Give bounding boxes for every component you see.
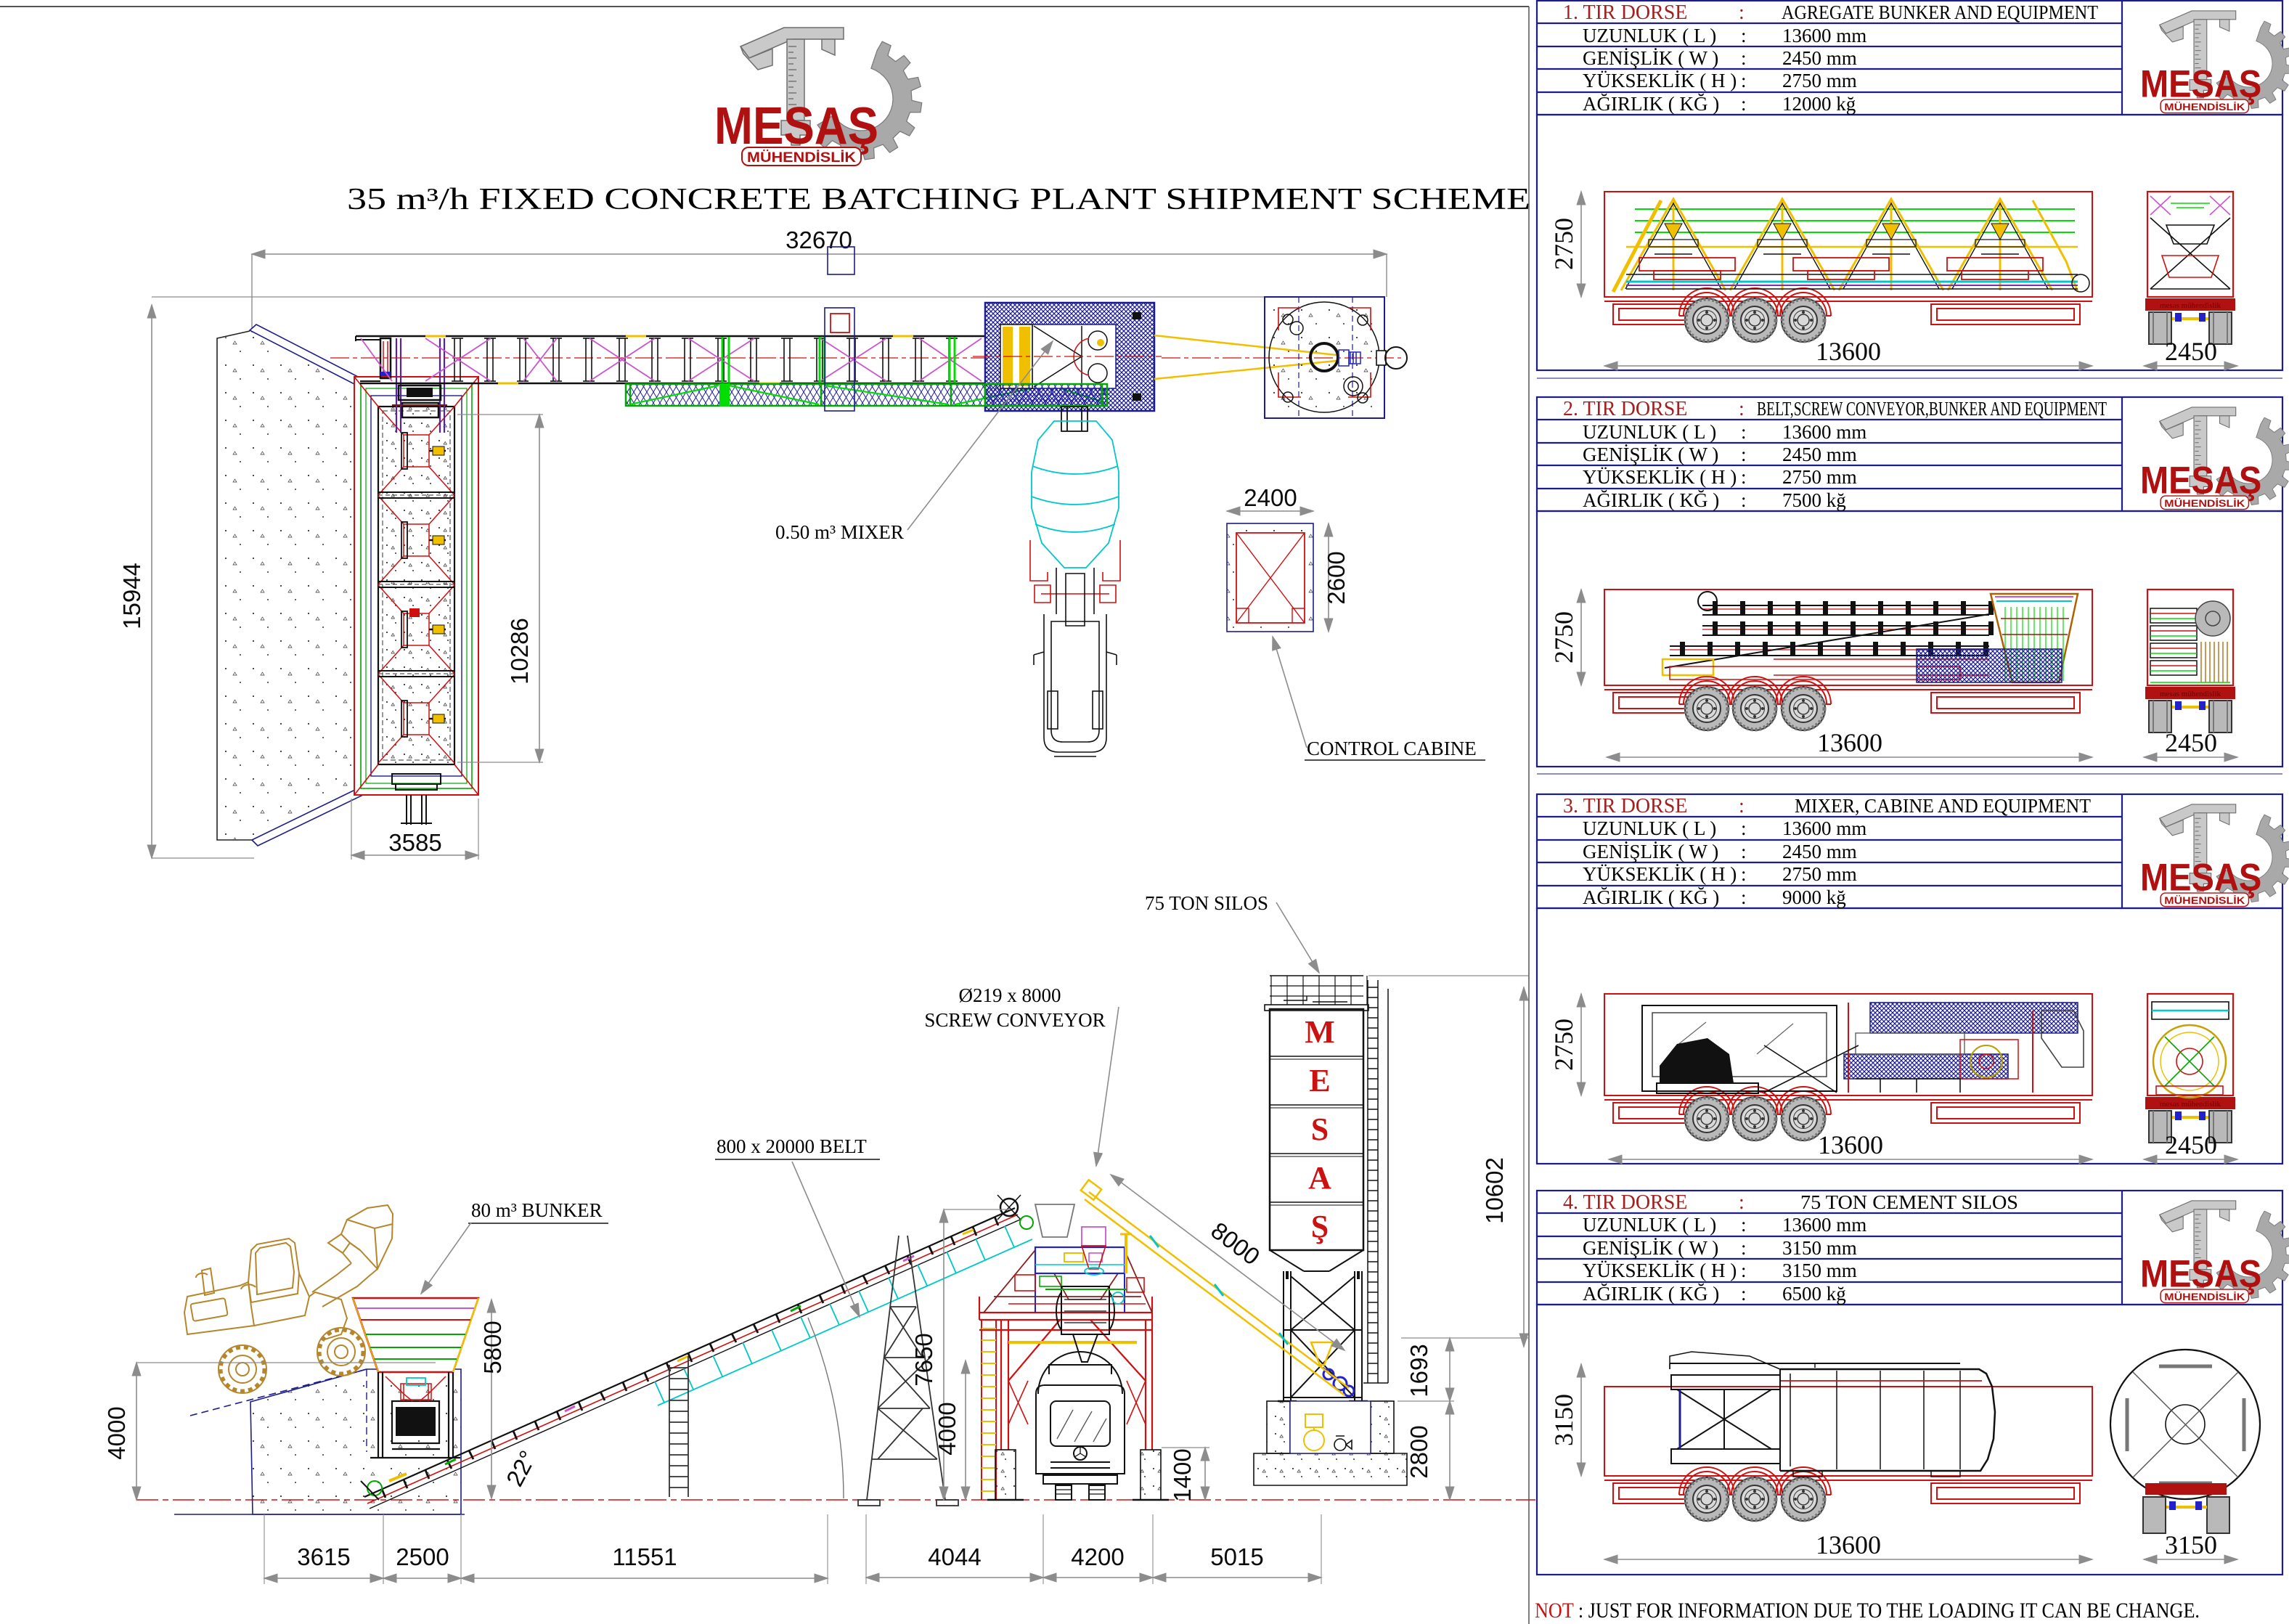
svg-text:75 TON CEMENT SILOS: 75 TON CEMENT SILOS (1800, 1191, 2018, 1213)
svg-text:2450: 2450 (2165, 337, 2217, 366)
svg-text:32670: 32670 (786, 227, 852, 253)
svg-text:3615: 3615 (297, 1543, 350, 1570)
svg-text::: : (1741, 1260, 1747, 1281)
svg-text:4000: 4000 (934, 1402, 960, 1455)
svg-text:1693: 1693 (1405, 1344, 1432, 1397)
svg-text:3585: 3585 (388, 829, 441, 856)
svg-text::: : (1741, 817, 1747, 839)
svg-text::: : (1741, 466, 1747, 488)
svg-text:13600 mm: 13600 mm (1782, 25, 1866, 46)
svg-text:2800: 2800 (1405, 1425, 1432, 1478)
svg-text:5015: 5015 (1210, 1543, 1263, 1570)
svg-text::: : (1741, 886, 1747, 908)
svg-text:13600: 13600 (1818, 1130, 1883, 1159)
svg-text:2450: 2450 (2165, 1130, 2217, 1159)
svg-text:800 x 20000 BELT: 800 x 20000 BELT (717, 1135, 867, 1157)
svg-text:3150 mm: 3150 mm (1782, 1260, 1857, 1281)
svg-text:1. TIR DORSE: 1. TIR DORSE (1563, 1, 1687, 24)
svg-text::: : (1741, 841, 1747, 862)
svg-text:2450: 2450 (2165, 728, 2217, 757)
svg-text:GENİŞLİK ( W ): GENİŞLİK ( W ) (1583, 47, 1718, 69)
svg-text:GENİŞLİK ( W ): GENİŞLİK ( W ) (1583, 1237, 1718, 1259)
svg-text:13600 mm: 13600 mm (1782, 421, 1866, 443)
svg-text:11551: 11551 (612, 1543, 677, 1570)
svg-text::: : (1741, 1283, 1747, 1305)
svg-text:CONTROL CABINE: CONTROL CABINE (1307, 738, 1477, 759)
svg-text:10602: 10602 (1481, 1157, 1508, 1224)
svg-text:6500 kğ: 6500 kğ (1782, 1283, 1846, 1305)
svg-text:2450 mm: 2450 mm (1782, 841, 1857, 862)
svg-text::: : (1741, 93, 1747, 115)
svg-text:4. TIR DORSE: 4. TIR DORSE (1563, 1191, 1687, 1214)
svg-text:2400: 2400 (1244, 484, 1297, 511)
svg-text:GENİŞLİK ( W ): GENİŞLİK ( W ) (1583, 841, 1718, 862)
svg-text:S: S (1311, 1111, 1329, 1147)
svg-text:AĞIRLIK ( KĞ ): AĞIRLIK ( KĞ ) (1583, 1283, 1719, 1305)
svg-text:2750 mm: 2750 mm (1782, 70, 1857, 91)
svg-text:1400: 1400 (1169, 1448, 1196, 1501)
svg-text:mesas mühendislik: mesas mühendislik (2160, 1100, 2221, 1109)
svg-text::: : (1741, 1214, 1747, 1236)
svg-text:4200: 4200 (1071, 1543, 1124, 1570)
svg-text:13600: 13600 (1816, 1530, 1881, 1559)
svg-text:Ø219 x 8000: Ø219 x 8000 (959, 984, 1061, 1006)
svg-text:13600 mm: 13600 mm (1782, 817, 1866, 839)
svg-text:10286: 10286 (506, 618, 533, 685)
svg-text:12000 kğ: 12000 kğ (1782, 93, 1856, 115)
svg-text:YÜKSEKLİK ( H ): YÜKSEKLİK ( H ) (1583, 70, 1737, 91)
svg-text::: : (1739, 398, 1745, 420)
svg-text::: : (1741, 444, 1747, 465)
svg-text:35 m³/h FIXED CONCRETE BATCHIN: 35 m³/h FIXED CONCRETE BATCHING PLANT SH… (347, 183, 1530, 216)
svg-text:9000 kğ: 9000 kğ (1782, 886, 1846, 908)
svg-text:2500: 2500 (396, 1543, 449, 1570)
svg-text::: : (1741, 70, 1747, 91)
svg-text:2750: 2750 (1549, 611, 1578, 664)
svg-text:UZUNLUK ( L ): UZUNLUK ( L ) (1583, 421, 1716, 443)
svg-text:5800: 5800 (479, 1321, 506, 1374)
svg-text:AĞIRLIK ( KĞ ): AĞIRLIK ( KĞ ) (1583, 886, 1719, 908)
svg-text::: : (1741, 47, 1747, 69)
svg-text:15944: 15944 (118, 563, 145, 629)
svg-text:AĞIRLIK ( KĞ ): AĞIRLIK ( KĞ ) (1583, 93, 1719, 115)
svg-text:2750 mm: 2750 mm (1782, 863, 1857, 885)
svg-text::: : (1741, 489, 1747, 511)
svg-text:mesas mühendislik: mesas mühendislik (2160, 301, 2221, 310)
svg-text:NOT : JUST FOR INFORMATION DUE: NOT : JUST FOR INFORMATION DUE TO THE LO… (1535, 1599, 2200, 1623)
svg-text:MIXER, CABINE AND EQUIPMENT: MIXER, CABINE AND EQUIPMENT (1795, 795, 2091, 817)
svg-text::: : (1739, 795, 1745, 817)
svg-text:4000: 4000 (103, 1406, 130, 1459)
svg-text:2450 mm: 2450 mm (1782, 444, 1857, 465)
svg-text:2750: 2750 (1549, 1019, 1578, 1071)
svg-text:7500 kğ: 7500 kğ (1782, 489, 1846, 511)
svg-text:13600 mm: 13600 mm (1782, 1214, 1866, 1236)
svg-text:2600: 2600 (1323, 551, 1350, 604)
svg-text:AGREGATE BUNKER AND EQUIPMENT: AGREGATE BUNKER AND EQUIPMENT (1782, 1, 2098, 23)
svg-text:mesas mühendislik: mesas mühendislik (2160, 690, 2221, 698)
svg-text::: : (1739, 1191, 1745, 1214)
svg-text:0.50 m³ MIXER: 0.50 m³ MIXER (775, 521, 904, 543)
svg-text:13600: 13600 (1816, 337, 1881, 366)
svg-text:3150: 3150 (2165, 1530, 2217, 1559)
svg-text::: : (1741, 1237, 1747, 1259)
svg-text:BELT,SCREW CONVEYOR,BUNKER AND: BELT,SCREW CONVEYOR,BUNKER AND EQUIPMENT (1757, 398, 2107, 420)
svg-text:A: A (1308, 1160, 1331, 1196)
svg-text:4044: 4044 (928, 1543, 981, 1570)
svg-text:13600: 13600 (1817, 728, 1882, 757)
svg-text:M: M (1305, 1014, 1335, 1050)
svg-text:SCREW CONVEYOR: SCREW CONVEYOR (924, 1009, 1105, 1031)
svg-text::: : (1741, 421, 1747, 443)
svg-text:3. TIR DORSE: 3. TIR DORSE (1563, 795, 1687, 817)
svg-text:75 TON SILOS: 75 TON SILOS (1145, 892, 1268, 914)
svg-text:UZUNLUK ( L ): UZUNLUK ( L ) (1583, 1214, 1716, 1236)
svg-text:E: E (1309, 1063, 1330, 1098)
svg-text:2750 mm: 2750 mm (1782, 466, 1857, 488)
svg-text:AĞIRLIK ( KĞ ): AĞIRLIK ( KĞ ) (1583, 489, 1719, 511)
svg-text::: : (1739, 1, 1745, 24)
svg-text:Ş: Ş (1311, 1209, 1329, 1244)
svg-text:80 m³ BUNKER: 80 m³ BUNKER (471, 1199, 603, 1221)
svg-text:7650: 7650 (910, 1333, 937, 1386)
svg-text:GENİŞLİK ( W ): GENİŞLİK ( W ) (1583, 444, 1718, 465)
svg-text::: : (1741, 25, 1747, 46)
svg-text:YÜKSEKLİK ( H ): YÜKSEKLİK ( H ) (1583, 466, 1737, 488)
svg-text:3150: 3150 (1549, 1394, 1578, 1446)
svg-text::: : (1741, 863, 1747, 885)
svg-text:UZUNLUK ( L ): UZUNLUK ( L ) (1583, 25, 1716, 46)
svg-text:2. TIR DORSE: 2. TIR DORSE (1563, 398, 1687, 420)
svg-text:YÜKSEKLİK ( H ): YÜKSEKLİK ( H ) (1583, 863, 1737, 885)
svg-text:3150 mm: 3150 mm (1782, 1237, 1857, 1259)
svg-text:UZUNLUK ( L ): UZUNLUK ( L ) (1583, 817, 1716, 839)
svg-text:2750: 2750 (1549, 218, 1578, 270)
svg-text:2450 mm: 2450 mm (1782, 47, 1857, 69)
svg-text:YÜKSEKLİK ( H ): YÜKSEKLİK ( H ) (1583, 1260, 1737, 1281)
